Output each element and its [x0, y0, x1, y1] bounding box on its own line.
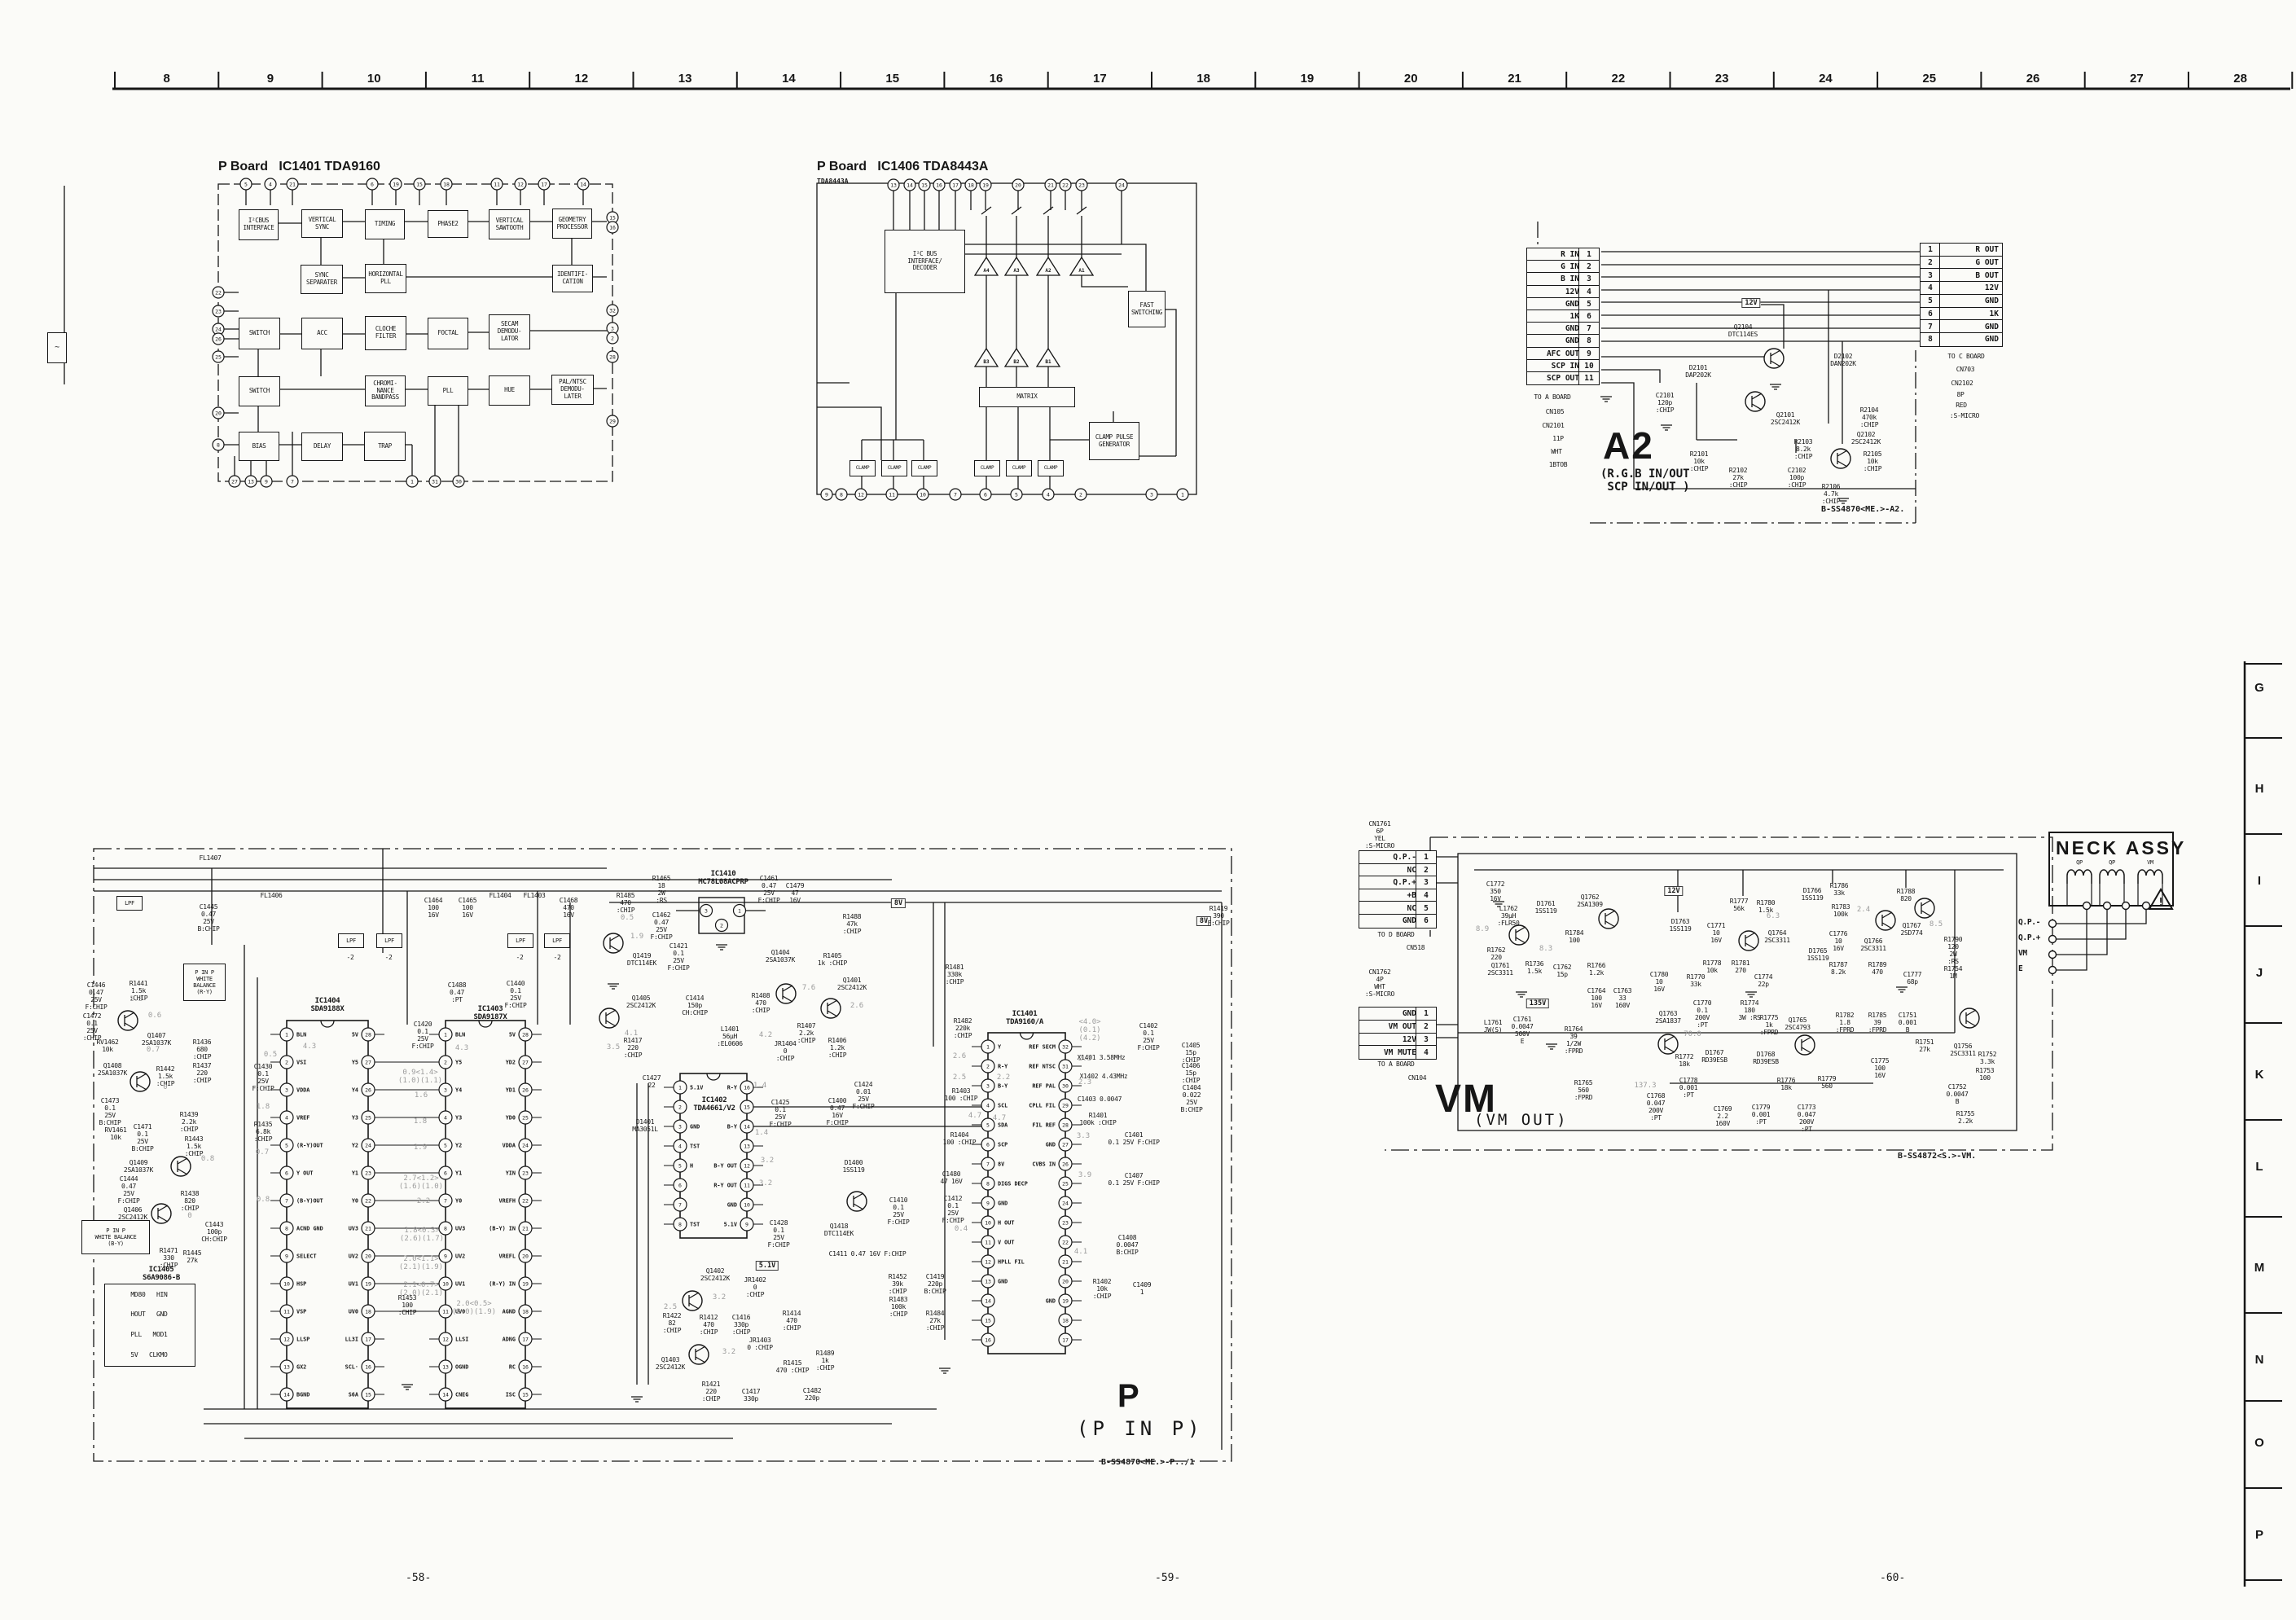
schematic-text: 29: [609, 418, 616, 424]
component-label: R1484 27k :CHIP: [926, 1310, 945, 1332]
schematic-text: 2: [444, 1059, 447, 1065]
component-label: CN518: [1407, 945, 1425, 952]
component-label: R1412 470 :CHIP: [700, 1315, 718, 1337]
schematic-text: 11: [744, 1182, 750, 1188]
lpf-block: LPF: [376, 933, 402, 948]
schematic-text: 12: [517, 181, 524, 187]
schematic-text: 31: [432, 478, 438, 485]
component-label: R1452 39k :CHIP: [889, 1274, 907, 1296]
schematic-text: 8: [678, 1221, 682, 1227]
component-label: 0.8: [257, 1196, 270, 1204]
schematic-text: 9: [285, 1253, 288, 1259]
neck-terminal: [2143, 902, 2150, 910]
schematic-text: 14: [907, 182, 913, 188]
component-label: 4.3: [303, 1043, 316, 1051]
schematic-text: 5: [1015, 491, 1018, 498]
component-label: 3.5: [607, 1043, 620, 1051]
diagram2-title: P Board IC1406 TDA8443A: [817, 160, 988, 174]
component-label: CN1761 6P YEL :S-MICRO: [1365, 821, 1394, 850]
component-label: R1786 33k: [1830, 883, 1849, 898]
schematic-text: 1: [986, 1043, 990, 1050]
schematic-text: 13: [744, 1143, 750, 1149]
schematic-text: 2: [285, 1059, 288, 1065]
voltage-box: 8V: [891, 898, 906, 908]
component-label: C1405 15p :CHIP: [1182, 1043, 1201, 1065]
schematic-text: 3: [678, 1123, 682, 1130]
component-label: C1406 15p :CHIP: [1182, 1063, 1201, 1085]
component-label: RV1462 10k: [96, 1039, 118, 1054]
component-label: C1440 0.1 25V F:CHIP: [504, 981, 526, 1010]
schematic-text: 3: [1150, 491, 1153, 498]
schematic-text: 15: [522, 1391, 529, 1398]
component-label: 4.3: [455, 1044, 468, 1052]
component-label: C1400 0.47 16V F:CHIP: [826, 1098, 848, 1127]
neck-terminal: [2083, 902, 2091, 910]
ruler-number: 20: [1404, 72, 1418, 86]
lpf-block: LPF: [116, 896, 143, 911]
schematic-text: 9: [745, 1221, 749, 1227]
row-letter-J: J: [2256, 966, 2263, 980]
component-label: R2101 10k :CHIP: [1690, 451, 1709, 473]
deflection-coil: [2138, 870, 2162, 884]
component-label: R1775 1k :FPRD: [1760, 1015, 1779, 1037]
schematic-text: 17: [541, 181, 547, 187]
component-label: FL1403: [523, 893, 545, 900]
blockdiagram-block: TIMING: [365, 209, 405, 239]
blockdiagram-block: GEOMETRY PROCESSOR: [552, 209, 592, 239]
schematic-text: 32: [1062, 1043, 1069, 1050]
component-label: C1780 10 16V: [1650, 972, 1669, 994]
component-label: C1773 0.047 200V :PT: [1798, 1104, 1816, 1134]
component-label: R1453 100 :CHIP: [398, 1295, 417, 1317]
component-label: D1401 MA3051L: [632, 1119, 658, 1134]
schematic-text: 23: [365, 1170, 371, 1176]
schematic-text: 6: [984, 491, 987, 498]
schematic-text: 9: [265, 478, 268, 485]
schematic-text: 28: [609, 353, 616, 360]
schematic-text: 9: [825, 491, 828, 498]
schematic-text: 23: [522, 1170, 529, 1176]
component-label: C1768 0.047 200V :PT: [1647, 1093, 1666, 1122]
ground-symbol: [939, 1368, 950, 1373]
component-label: R1751 27k: [1916, 1039, 1934, 1054]
schematic-text: 10: [442, 1280, 449, 1287]
schematic-text: 24: [1062, 1200, 1069, 1206]
schematic-text: 10: [985, 1219, 991, 1226]
component-label: C2101 120p :CHIP: [1656, 393, 1675, 415]
schematic-text: HSP: [296, 1281, 306, 1288]
schematic-text: 5: [444, 1142, 447, 1148]
schematic-text: 14: [985, 1297, 991, 1304]
blockdiagram-block: I²CBUS INTERFACE: [239, 209, 279, 240]
component-label: R1754 1M: [1944, 966, 1963, 981]
schematic-text: 30: [455, 478, 462, 485]
component-label: R1414 470 :CHIP: [783, 1310, 801, 1332]
schematic-text: 15: [609, 214, 616, 221]
schematic-text: ISC: [506, 1392, 516, 1398]
schematic-text: R-Y: [727, 1085, 738, 1091]
component-label: C1461 0.47 25V F:CHIP: [757, 876, 779, 905]
schematic-text: UV1: [349, 1281, 358, 1288]
clamp-block: CLAMP: [881, 460, 907, 476]
component-label: 3.2: [759, 1179, 772, 1188]
ground-symbol: [1600, 397, 1612, 402]
component-label: 0.7: [147, 1046, 160, 1054]
schematic-text: 30: [1062, 1082, 1069, 1089]
clamp-block: CLAMP: [974, 460, 1000, 476]
schematic-text: 7: [285, 1197, 288, 1204]
component-label: 3.9: [1078, 1171, 1091, 1179]
component-label: R2105 10k :CHIP: [1864, 451, 1882, 473]
component-label: Q1765 2SC4793: [1785, 1017, 1811, 1032]
page-number-60: -60-: [1880, 1572, 1905, 1584]
schematic-text: 18: [522, 1308, 529, 1315]
schematic-text: 3: [285, 1087, 288, 1093]
ground-symbol: [1516, 992, 1527, 997]
schematic-text: 21: [1062, 1258, 1069, 1265]
component-label: R1421 220 :CHIP: [702, 1381, 721, 1403]
component-label: R1778 10k: [1703, 960, 1722, 975]
component-label: R1402 10k :CHIP: [1093, 1279, 1112, 1301]
schematic-text: 14: [442, 1391, 449, 1398]
component-label: -2: [516, 955, 523, 962]
schematic-text: 5.1V: [690, 1085, 703, 1091]
schematic-text: 26: [522, 1087, 529, 1093]
component-label: R1772 18k: [1675, 1054, 1694, 1069]
schematic-text: VREF: [296, 1115, 309, 1122]
schematic-text: R-Y OUT: [713, 1183, 737, 1189]
component-label: D1768 RD39ESB: [1753, 1051, 1779, 1066]
schematic-text: HPLL FIL: [998, 1259, 1025, 1266]
schematic-text: B-Y: [998, 1083, 1008, 1090]
schematic-text: 3: [705, 907, 708, 914]
component-label: 2.5: [953, 1073, 966, 1082]
component-label: 1.8<0.3> (2.6)(1.7): [400, 1227, 444, 1243]
ruler-number: 18: [1196, 72, 1210, 86]
schematic-text: 12: [985, 1258, 991, 1265]
schematic-text: CNEG: [455, 1392, 468, 1398]
schematic-text: 13: [442, 1363, 449, 1370]
schematic-text: TST: [690, 1222, 700, 1228]
component-label: R1489 1k :CHIP: [816, 1350, 835, 1372]
schematic-text: 8: [217, 441, 220, 448]
schematic-text: (R-Y) IN: [489, 1281, 516, 1288]
component-label: 7.6: [802, 984, 815, 992]
schematic-text: 15: [416, 181, 423, 187]
component-label: R1774 180 3W :RS: [1738, 1000, 1760, 1022]
schematic-text: 21: [289, 181, 296, 187]
schematic-text: 16: [936, 182, 942, 188]
component-label: C1468 470 16V: [560, 898, 578, 920]
component-label: C1424 0.01 25V F:CHIP: [852, 1082, 874, 1111]
schematic-text: 5.1V: [724, 1222, 737, 1228]
schematic-text: GND: [690, 1124, 700, 1130]
component-label: :S-MICRO: [1950, 413, 1979, 420]
row-letter-N: N: [2255, 1353, 2264, 1367]
component-label: C1409 1: [1133, 1282, 1152, 1297]
schematic-text: 27: [231, 478, 238, 485]
row-letter-M: M: [2254, 1261, 2265, 1275]
component-label: R1483 100k :CHIP: [889, 1297, 908, 1319]
transistor: [599, 1008, 619, 1028]
schematic-text: Y5: [352, 1060, 358, 1066]
schematic-text: 8: [986, 1180, 990, 1187]
blockdiagram-block: IDENTIFI- CATION: [552, 265, 593, 292]
pinp-section-label: P: [1117, 1378, 1141, 1415]
schematic-text: BLN: [296, 1032, 306, 1038]
component-label: CN104: [1408, 1075, 1427, 1082]
component-label: R1764 39 1/2W :FPRD: [1565, 1026, 1583, 1056]
component-label: C1776 10 16V: [1829, 931, 1848, 953]
schematic-text: 22: [365, 1197, 371, 1204]
schematic-text: 17: [522, 1336, 529, 1342]
voltage-box: 5.1V: [756, 1261, 779, 1271]
component-label: C1775 100 16V: [1871, 1058, 1890, 1080]
component-label: 4.7: [968, 1112, 981, 1120]
ruler-number: 22: [1612, 72, 1626, 86]
component-label: 0.4: [955, 1225, 968, 1233]
component-label: Q1405 2SC2412K: [626, 995, 656, 1010]
ruler-number: 16: [990, 72, 1003, 86]
schematic-text: Y3: [352, 1115, 358, 1122]
schematic-text: 2: [678, 1104, 682, 1110]
schematic-text: A2: [1045, 268, 1051, 274]
blockdiagram1-wires: [224, 190, 607, 476]
voltage-box: 12V: [1741, 298, 1760, 308]
schematic-text: 27: [365, 1059, 371, 1065]
schematic-text: 19: [393, 181, 399, 187]
schematic-text: VSP: [296, 1309, 306, 1315]
component-label: R1777 56k: [1730, 898, 1749, 913]
component-label: R1788 820: [1897, 889, 1916, 903]
component-label: R1408 470 :CHIP: [752, 993, 770, 1015]
component-label: R1422 82 :CHIP: [663, 1313, 682, 1335]
schematic-text: 31: [1062, 1063, 1069, 1069]
component-label: TO D BOARD: [1377, 932, 1414, 939]
schematic-text: 17: [365, 1336, 371, 1342]
schematic-text: GND: [998, 1201, 1008, 1207]
component-label: Q1402 2SC2412K: [700, 1268, 730, 1283]
ruler-number: 24: [1819, 72, 1833, 86]
component-label: C1473 0.1 25V B:CHIP: [99, 1098, 121, 1127]
schematic-text: SELECT: [296, 1253, 317, 1260]
schematic-text: 4: [285, 1114, 288, 1121]
component-label: R1481 330k :CHIP: [946, 964, 964, 986]
ruler-number: 23: [1715, 72, 1729, 86]
component-label: R1766 1.2k: [1587, 963, 1606, 977]
component-label: C1462 0.47 25V F:CHIP: [650, 912, 672, 942]
component-label: CN2102: [1951, 380, 1973, 388]
schematic-text: 26: [365, 1087, 371, 1093]
schematic-text: LLSP: [296, 1337, 309, 1343]
schematic-text: H: [690, 1163, 693, 1170]
component-label: 8.3: [1539, 945, 1552, 953]
schematic-text: LL3I: [345, 1337, 358, 1343]
component-label: 5V CLKMO: [130, 1352, 167, 1359]
schematic-text: 6: [444, 1170, 447, 1176]
schematic-text: H OUT: [998, 1220, 1014, 1227]
schematic-text: 11: [985, 1239, 991, 1245]
component-label: D1400 1SS119: [842, 1160, 864, 1174]
schematic-text: 21: [365, 1225, 371, 1231]
schematic-text: 20: [1015, 182, 1021, 188]
schematic-text: 1: [678, 1084, 682, 1091]
schematic-text: 16: [609, 224, 616, 230]
schematic-text: Y1: [352, 1170, 358, 1177]
component-label: L1762 39μH :FLR50: [1497, 906, 1519, 928]
schematic-text: 7: [954, 491, 957, 498]
component-label: D1761 1SS119: [1534, 901, 1556, 915]
schematic-text: 3: [986, 1082, 990, 1089]
schematic-text: REF NTSC: [1029, 1064, 1056, 1070]
schematic-text: GX2: [296, 1364, 306, 1371]
component-label: R1404 100 :CHIP: [943, 1132, 977, 1147]
vm-output-terminal: [2049, 920, 2057, 928]
component-label: C1772 350 16V: [1486, 881, 1505, 903]
schematic-text: 6: [986, 1141, 990, 1148]
component-label: C1482 220p: [803, 1388, 822, 1403]
ground-symbol: [1896, 987, 1907, 992]
schematic-text: 1: [444, 1031, 447, 1038]
component-label: IC1404 SDA9188X: [311, 997, 345, 1013]
blockdiagram-block: SECAM DEMODU- LATOR: [489, 314, 530, 349]
component-label: CN703: [1956, 367, 1975, 374]
schematic-text: 23: [1062, 1219, 1069, 1226]
component-label: 4.1: [625, 1030, 638, 1038]
schematic-text: 18: [1062, 1317, 1069, 1324]
schematic-text: (B-Y)OUT: [296, 1198, 323, 1205]
component-label: C1769 2.2 160V: [1714, 1106, 1732, 1128]
schematic-text: 16: [365, 1363, 371, 1370]
transistor: [689, 1345, 709, 1364]
schematic-text: 17: [952, 182, 959, 188]
component-label: R1437 220 :CHIP: [193, 1063, 212, 1085]
component-label: 2.1<0.7> (2.0)(2.1): [399, 1281, 443, 1297]
schematic-text: 7: [678, 1201, 682, 1208]
schematic-text: GND: [1046, 1142, 1056, 1148]
component-label: 4.7: [993, 1114, 1006, 1122]
component-label: PLL MOD1: [130, 1332, 167, 1339]
component-label: R1482 220k :CHIP: [954, 1018, 972, 1040]
component-label: E: [2018, 965, 2022, 974]
schematic-text: 12: [283, 1336, 290, 1342]
a2-section-sublabel: (R.G.B IN/OUT SCP IN/OUT ): [1600, 468, 1690, 494]
component-label: C1752 0.0047 B: [1946, 1084, 1968, 1106]
ruler-number: 17: [1093, 72, 1107, 86]
schematic-text: 15: [365, 1391, 371, 1398]
component-label: R1406 1.2k :CHIP: [828, 1038, 847, 1060]
component-label: TO C BOARD: [1947, 353, 1984, 361]
component-label: C1763 33 160V: [1613, 988, 1632, 1010]
blockdiagram-block: VERTICAL SAWTOOTH: [489, 209, 530, 239]
schematic-text: R-Y: [998, 1064, 1008, 1070]
schematic-text: LLSI: [455, 1337, 468, 1343]
component-label: C1445 0.47 25V B:CHIP: [197, 904, 219, 933]
component-label: C1404 0.022 25V B:CHIP: [1180, 1085, 1202, 1114]
schematic-text: 15: [985, 1317, 991, 1324]
pinp-board-ref: B-SS4870<ME.>-P../1: [1101, 1458, 1194, 1467]
blockdiagram-block: SWITCH: [239, 318, 280, 349]
schematic-text: CPLL FIL: [1029, 1103, 1056, 1109]
schematic-text: 29: [1062, 1102, 1069, 1109]
ground-symbol: [716, 945, 727, 950]
component-label: Q.P.-: [2018, 919, 2040, 928]
blockdiagram-block: CHROMI- NANCE BANDPASS: [365, 375, 406, 406]
clamp-block: CLAMP: [1006, 460, 1032, 476]
schematic-text: 5V: [352, 1032, 358, 1038]
schematic-text: 28: [522, 1031, 529, 1038]
transistor: [171, 1157, 191, 1176]
schematic-text: UV0: [349, 1309, 358, 1315]
component-label: -2: [346, 955, 353, 962]
component-label: Q2104 DTC114ES: [1728, 324, 1758, 339]
transistor: [847, 1192, 867, 1211]
schematic-text: SCL·: [345, 1364, 358, 1371]
transistor: [604, 933, 623, 953]
component-label: 4.1: [1074, 1248, 1087, 1256]
coil-label: VM: [2147, 860, 2153, 867]
component-label: C1416 330p :CHIP: [732, 1315, 751, 1337]
component-label: R2102 27k :CHIP: [1729, 468, 1748, 490]
schematic-text: 16: [985, 1337, 991, 1343]
component-label: TO A BOARD: [1534, 394, 1570, 402]
component-label: R1753 100: [1976, 1068, 1995, 1082]
schematic-text: 11: [889, 491, 895, 498]
schematic-text: !: [2158, 897, 2164, 909]
component-label: 2.7<1.2> (1.6)(1.0): [399, 1174, 443, 1191]
schematic-text: VDDA: [503, 1143, 516, 1149]
schematic-text: 24: [365, 1142, 371, 1148]
vm-section-sublabel: (VM OUT): [1474, 1111, 1569, 1129]
schematic-text: 18: [443, 181, 450, 187]
component-label: 11P: [1552, 436, 1564, 443]
component-label: Q1767 2SD774: [1900, 923, 1922, 937]
schematic-text: 22: [215, 289, 222, 296]
component-label: C1414 150p CH:CHIP: [682, 995, 708, 1017]
component-label: C1411 0.47 16V F:CHIP: [829, 1251, 907, 1258]
component-label: 2.4: [1857, 906, 1870, 914]
schematic-text: 4: [1047, 491, 1050, 498]
component-label: Q2102 2SC2412K: [1851, 432, 1881, 446]
schematic-text: 19: [522, 1280, 529, 1287]
schematic-text: 2: [986, 1063, 990, 1069]
schematic-text: YD1: [506, 1087, 516, 1094]
transistor: [1658, 1034, 1678, 1054]
component-label: 2.6: [850, 1002, 863, 1010]
schematic-text: 14: [744, 1123, 750, 1130]
component-label: C1770 0.1 200V :PT: [1693, 1000, 1712, 1030]
component-label: D2101 DAP202K: [1685, 365, 1711, 380]
component-label: R1784 100: [1565, 930, 1584, 945]
schematic-text: 17: [1062, 1337, 1069, 1343]
ground-symbol: [402, 1385, 413, 1390]
schematic-text: 20: [1062, 1278, 1069, 1284]
a2-input-connector-num: 11: [1578, 371, 1600, 385]
component-label: C1410 0.1 25V F:CHIP: [887, 1197, 909, 1227]
schematic-text: 14: [580, 181, 586, 187]
component-label: 1.4: [755, 1129, 768, 1137]
schematic-text: REF SECM: [1029, 1044, 1056, 1051]
ground-symbol: [1770, 384, 1781, 389]
component-label: MD80 HIN: [130, 1292, 167, 1299]
schematic-text: UV3: [349, 1226, 358, 1232]
ruler-number: 8: [163, 72, 169, 86]
voltage-box: 135V: [1526, 999, 1549, 1008]
component-label: CN2101: [1542, 423, 1564, 430]
schematic-text: 5: [986, 1122, 990, 1128]
schematic-text: 21: [1047, 182, 1054, 188]
component-label: TO A BOARD: [1377, 1061, 1414, 1069]
